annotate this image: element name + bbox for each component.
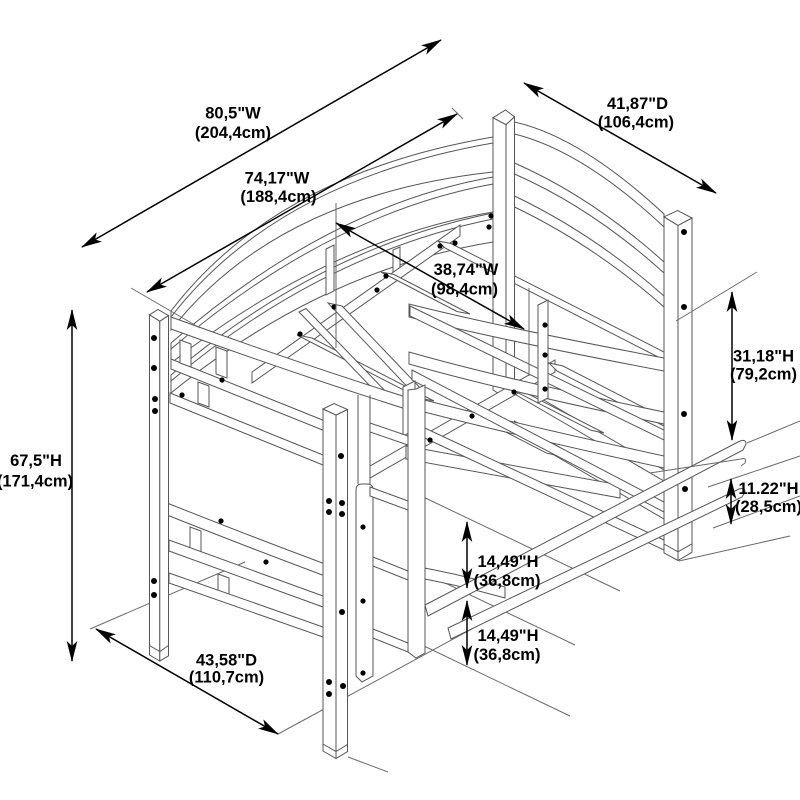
svg-text:(98,4cm): (98,4cm)	[431, 281, 498, 299]
svg-text:(36,8cm): (36,8cm)	[474, 572, 541, 590]
svg-text:(188,4cm): (188,4cm)	[240, 188, 316, 206]
svg-text:74,17"W: 74,17"W	[245, 170, 310, 188]
svg-text:38,74"W: 38,74"W	[434, 261, 499, 279]
svg-text:(204,4cm): (204,4cm)	[195, 124, 271, 142]
svg-text:14,49"H: 14,49"H	[477, 627, 538, 645]
svg-text:(106,4cm): (106,4cm)	[598, 114, 674, 132]
svg-text:67,5"H: 67,5"H	[10, 452, 62, 470]
svg-text:43,58"D: 43,58"D	[196, 652, 257, 670]
svg-text:41,87"D: 41,87"D	[607, 95, 668, 113]
svg-text:(110,7cm): (110,7cm)	[189, 669, 264, 687]
svg-text:(28,5cm): (28,5cm)	[735, 498, 800, 516]
svg-text:(171,4cm): (171,4cm)	[0, 473, 73, 491]
svg-text:80,5"W: 80,5"W	[205, 105, 261, 123]
svg-text:(79,2cm): (79,2cm)	[730, 366, 797, 384]
svg-text:31,18"H: 31,18"H	[733, 348, 794, 366]
svg-text:(36,8cm): (36,8cm)	[474, 646, 541, 664]
svg-text:14,49"H: 14,49"H	[477, 553, 538, 571]
svg-text:11.22"H: 11.22"H	[738, 480, 798, 498]
